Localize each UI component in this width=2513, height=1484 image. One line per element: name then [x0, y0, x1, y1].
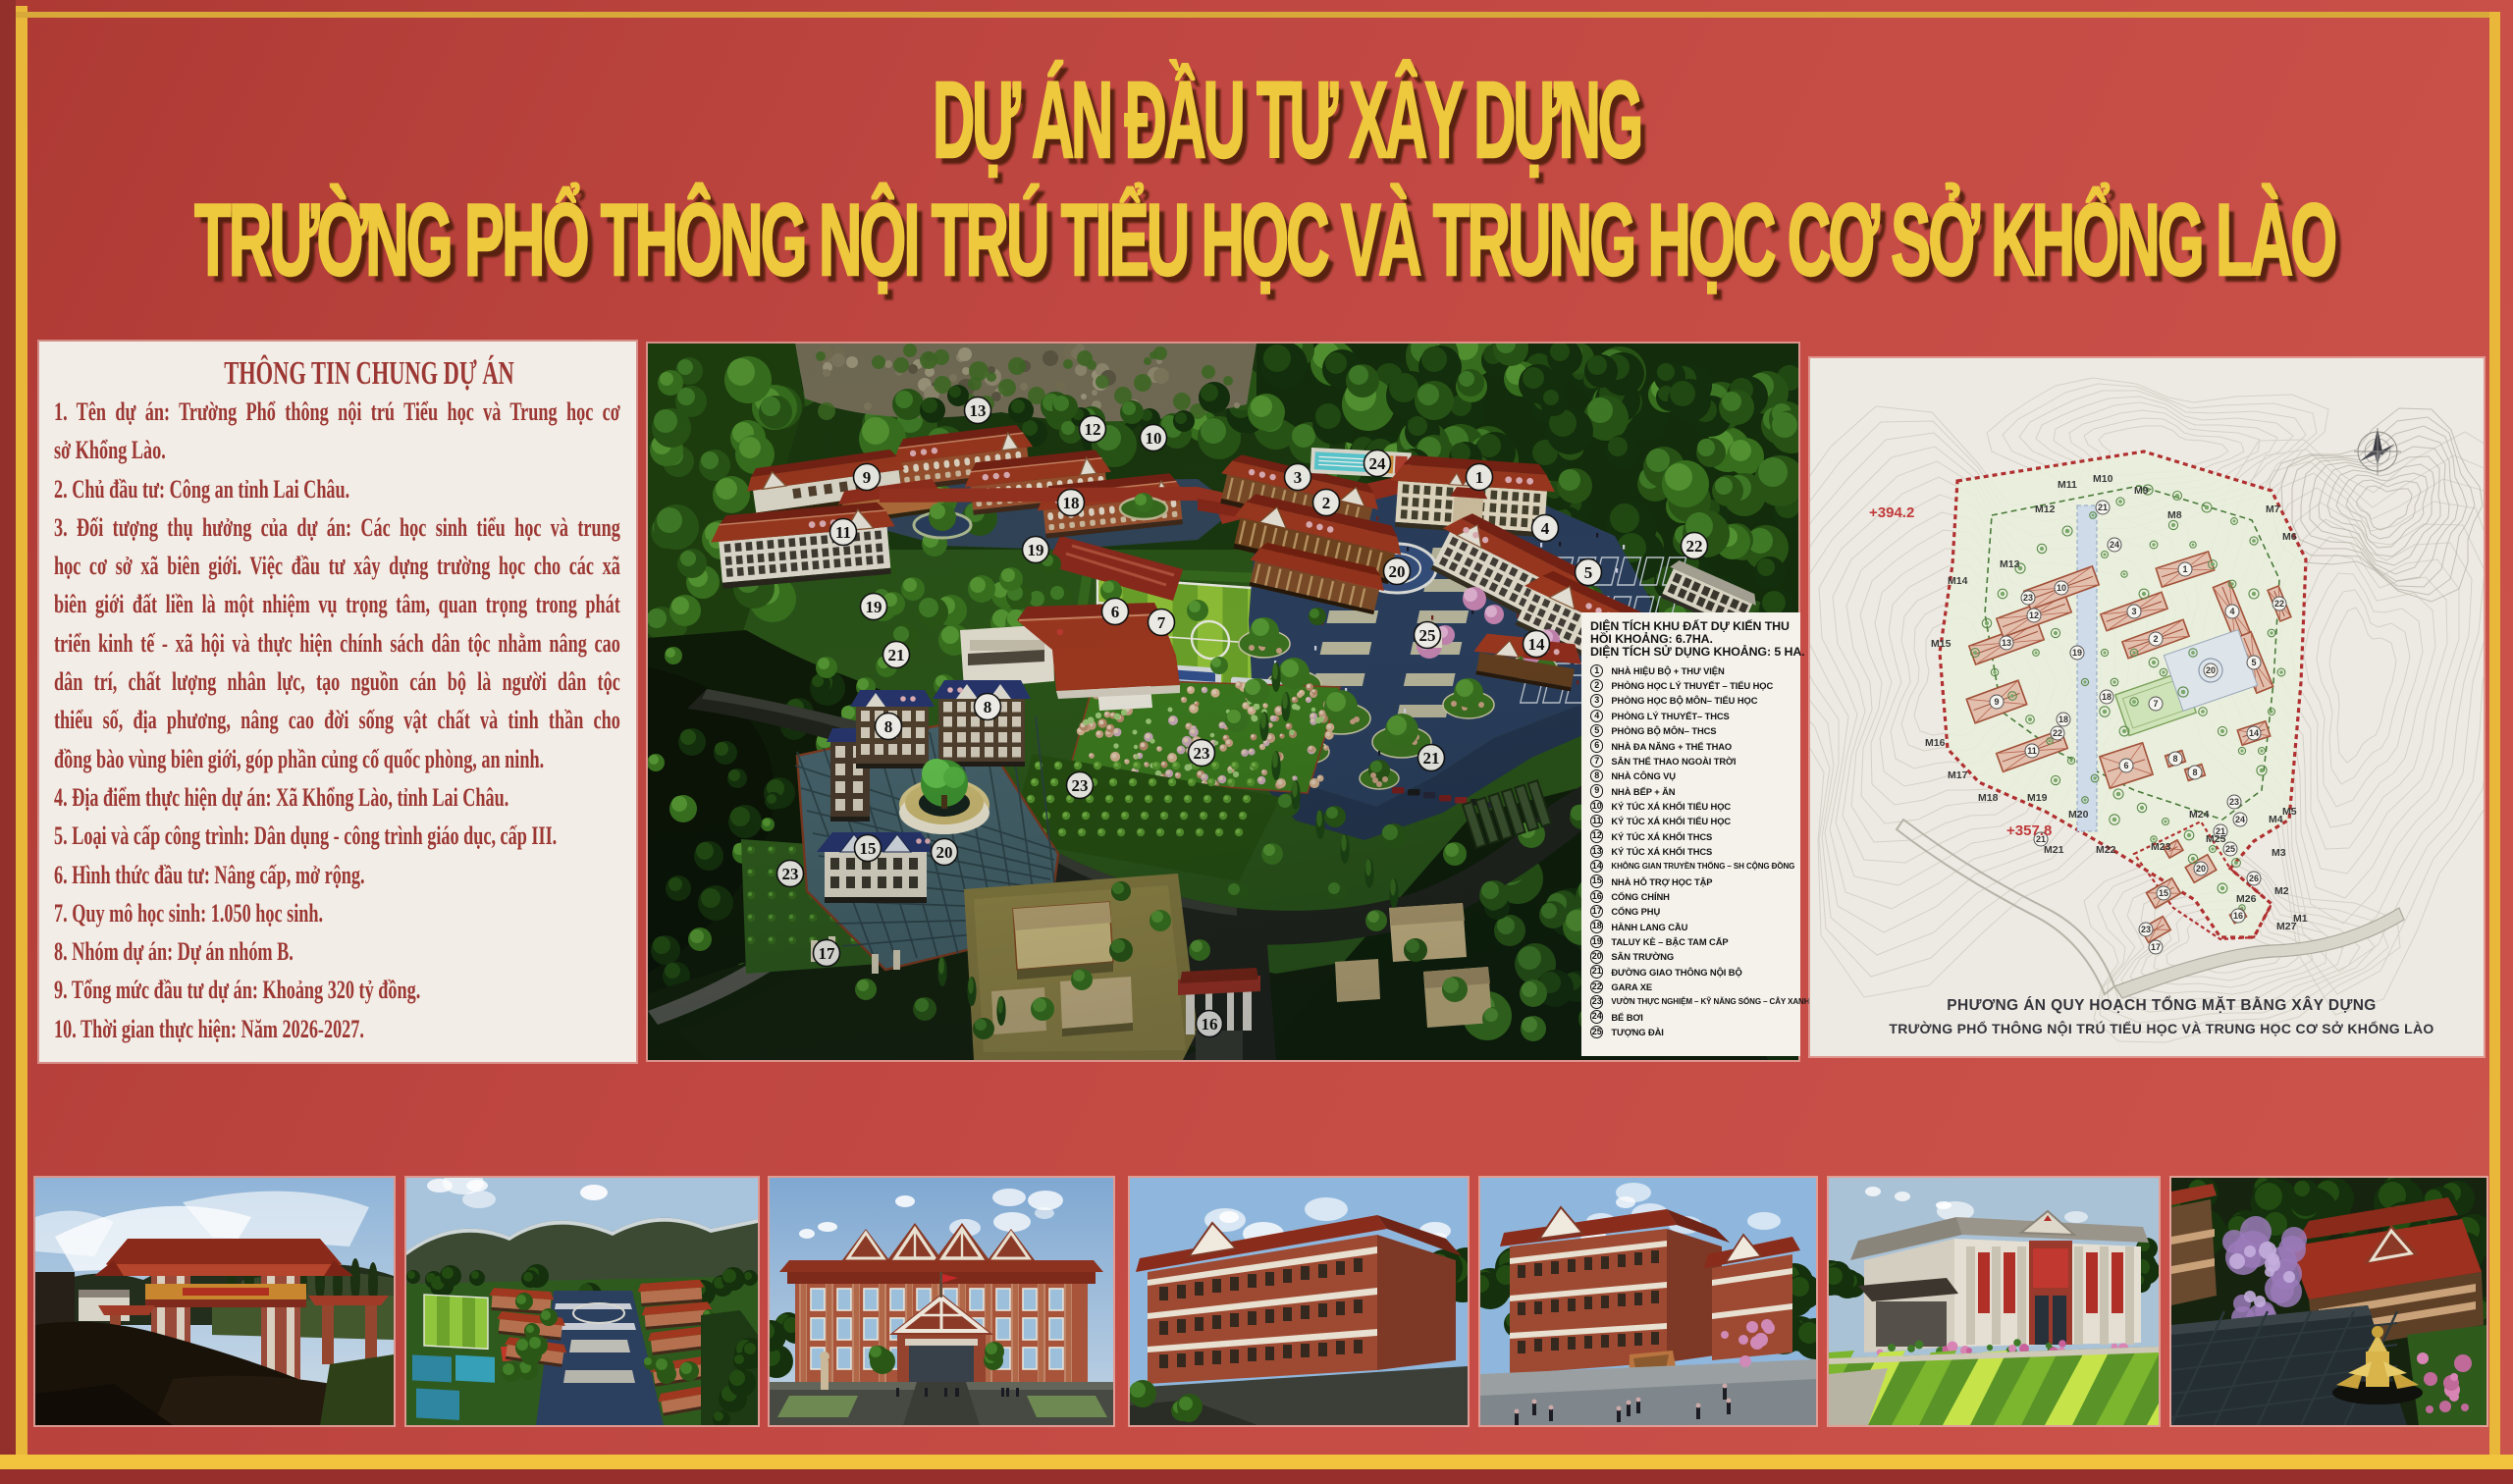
svg-text:25: 25 [2225, 844, 2235, 854]
svg-text:23: 23 [2023, 593, 2033, 603]
svg-text:5: 5 [2251, 658, 2256, 667]
svg-text:M14: M14 [1948, 575, 1968, 587]
svg-text:22: 22 [2053, 728, 2062, 738]
svg-text:M26: M26 [2236, 893, 2257, 905]
svg-text:M17: M17 [1948, 769, 1968, 781]
svg-text:+394.2: +394.2 [1869, 504, 1914, 521]
svg-text:10: 10 [2057, 583, 2066, 593]
svg-text:M6: M6 [2282, 531, 2297, 543]
svg-text:M12: M12 [2035, 503, 2056, 515]
svg-text:15: 15 [2159, 888, 2168, 898]
svg-text:24: 24 [2110, 540, 2119, 550]
svg-text:16: 16 [2233, 911, 2243, 921]
svg-text:M5: M5 [2282, 806, 2297, 818]
svg-text:M25: M25 [2206, 833, 2226, 845]
svg-text:M8: M8 [2167, 509, 2182, 521]
svg-text:14: 14 [2249, 728, 2259, 738]
svg-text:M4: M4 [2269, 814, 2283, 825]
svg-text:8: 8 [2172, 754, 2177, 764]
svg-text:20: 20 [2206, 665, 2216, 675]
svg-text:M9: M9 [2134, 485, 2149, 497]
svg-text:M21: M21 [2044, 844, 2064, 856]
svg-text:6: 6 [2123, 761, 2128, 770]
svg-text:M15: M15 [1931, 638, 1952, 650]
svg-text:18: 18 [2102, 692, 2112, 702]
svg-text:M16: M16 [1925, 737, 1946, 749]
svg-text:8: 8 [2192, 768, 2197, 777]
svg-text:M23: M23 [2151, 841, 2171, 853]
svg-text:19: 19 [2072, 648, 2082, 658]
svg-text:M18: M18 [1978, 792, 1999, 804]
svg-text:M11: M11 [2058, 479, 2077, 491]
svg-text:24: 24 [2235, 815, 2245, 824]
svg-text:9: 9 [1994, 697, 1999, 707]
svg-text:M27: M27 [2276, 921, 2297, 932]
svg-text:1: 1 [2182, 564, 2187, 574]
svg-text:4: 4 [2229, 607, 2234, 616]
svg-text:18: 18 [2059, 715, 2068, 724]
svg-text:M20: M20 [2068, 809, 2089, 821]
svg-text:11: 11 [2027, 746, 2037, 756]
svg-text:17: 17 [2151, 942, 2161, 952]
svg-text:M22: M22 [2096, 844, 2116, 856]
svg-text:26: 26 [2249, 874, 2259, 883]
svg-text:+357.8: +357.8 [2006, 822, 2052, 839]
svg-text:7: 7 [2153, 699, 2158, 709]
svg-text:M13: M13 [2000, 558, 2020, 570]
svg-text:22: 22 [2274, 599, 2284, 609]
svg-text:M10: M10 [2093, 473, 2113, 485]
svg-text:13: 13 [2002, 638, 2011, 648]
svg-text:12: 12 [2029, 610, 2039, 620]
svg-text:23: 23 [2141, 925, 2151, 934]
svg-text:M24: M24 [2189, 809, 2210, 821]
svg-text:M2: M2 [2274, 885, 2289, 897]
svg-text:21: 21 [2098, 503, 2108, 512]
svg-text:M19: M19 [2027, 792, 2048, 804]
svg-text:20: 20 [2196, 864, 2206, 874]
svg-text:M7: M7 [2266, 503, 2280, 515]
svg-text:PHƯƠNG ÁN QUY HOẠCH TỔNG MẶT B: PHƯƠNG ÁN QUY HOẠCH TỔNG MẶT BẰNG XÂY DỰ… [1947, 996, 2377, 1014]
svg-text:TRƯỜNG PHỔ THÔNG NỘI TRÚ TIỂU: TRƯỜNG PHỔ THÔNG NỘI TRÚ TIỂU HỌC VÀ TRU… [1889, 1020, 2433, 1036]
svg-text:3: 3 [2131, 607, 2136, 616]
svg-text:2: 2 [2153, 634, 2158, 644]
svg-text:M3: M3 [2272, 847, 2286, 859]
svg-text:23: 23 [2229, 797, 2239, 807]
